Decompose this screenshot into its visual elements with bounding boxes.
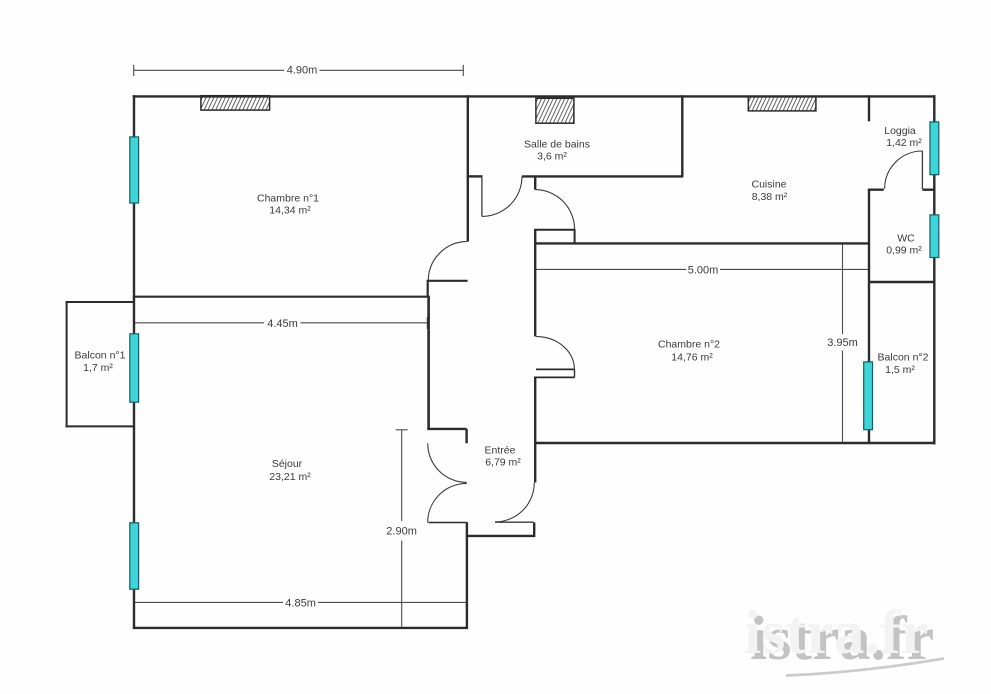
svg-text:4.90m: 4.90m <box>287 64 318 76</box>
svg-text:Loggia: Loggia <box>884 125 916 137</box>
svg-text:WC: WC <box>897 233 915 245</box>
svg-text:3.95m: 3.95m <box>827 337 858 349</box>
svg-text:Balcon n°1: Balcon n°1 <box>75 350 126 362</box>
svg-text:4.85m: 4.85m <box>285 598 316 610</box>
svg-text:14,34 m²: 14,34 m² <box>269 205 311 217</box>
svg-text:6,79 m²: 6,79 m² <box>485 456 521 468</box>
svg-text:4.45m: 4.45m <box>267 318 298 330</box>
svg-text:8,38 m²: 8,38 m² <box>752 191 788 203</box>
svg-text:Chambre n°1: Chambre n°1 <box>257 192 319 204</box>
svg-text:1,42 m²: 1,42 m² <box>886 137 922 149</box>
svg-text:23,21 m²: 23,21 m² <box>269 471 311 483</box>
svg-text:Salle de bains: Salle de bains <box>524 138 590 150</box>
svg-text:1,7 m²: 1,7 m² <box>83 362 113 374</box>
svg-text:3,6 m²: 3,6 m² <box>537 150 567 162</box>
svg-text:Séjour: Séjour <box>272 458 303 470</box>
svg-text:Chambre n°2: Chambre n°2 <box>658 338 720 350</box>
svg-text:Balcon n°2: Balcon n°2 <box>878 351 929 363</box>
svg-text:1,5 m²: 1,5 m² <box>885 364 915 376</box>
svg-text:2.90m: 2.90m <box>386 526 417 538</box>
svg-text:5.00m: 5.00m <box>688 264 719 276</box>
svg-text:Cuisine: Cuisine <box>751 178 786 190</box>
svg-text:14,76 m²: 14,76 m² <box>671 351 713 363</box>
svg-text:Entrée: Entrée <box>485 444 516 456</box>
svg-text:istra.fr: istra.fr <box>744 599 928 667</box>
svg-text:0,99 m²: 0,99 m² <box>886 245 922 257</box>
